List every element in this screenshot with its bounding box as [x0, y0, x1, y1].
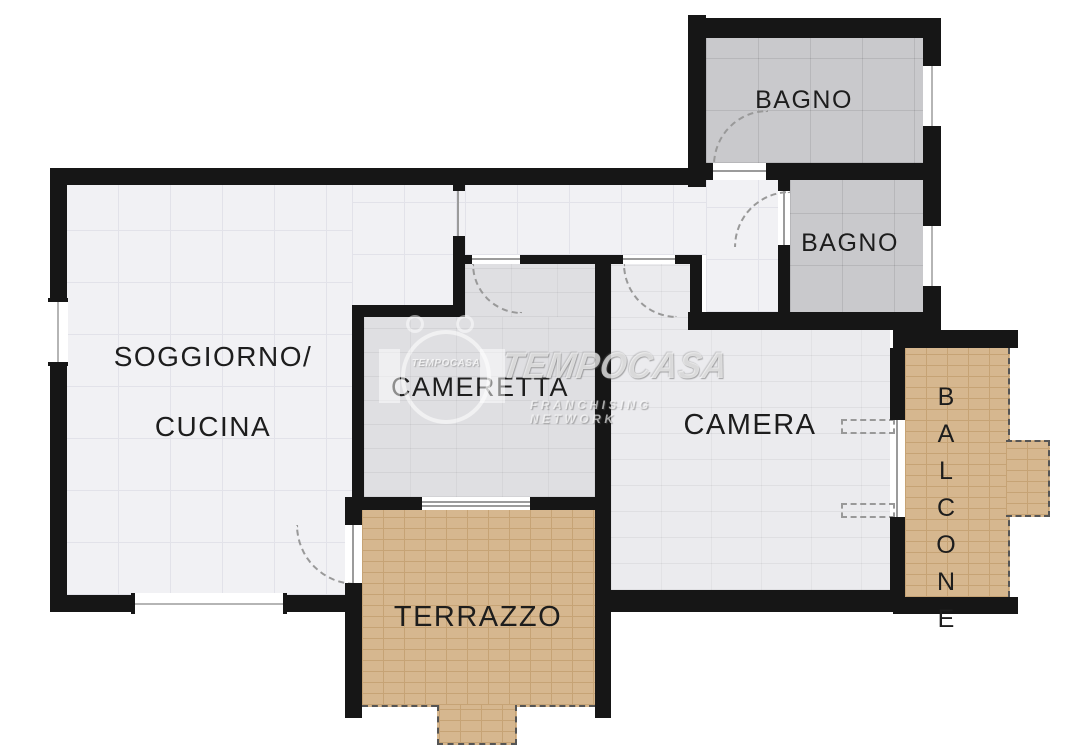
- window-soggiorno-bottom: [131, 593, 287, 614]
- cameretta-label: CAMERETTA: [390, 372, 570, 403]
- wall-bagno-divider-left: [706, 163, 713, 180]
- wall-cameretta-top-stub: [453, 255, 472, 264]
- window-bagno-mid: [923, 222, 941, 290]
- wall-outer-left: [50, 168, 67, 612]
- terrazzo-slider-line1: [422, 501, 530, 503]
- cameretta-door-threshold: [472, 258, 520, 260]
- wall-terrazzo-left-upper: [345, 497, 362, 525]
- wall-divider-cameretta-camera: [595, 255, 611, 718]
- wall-soggiorno-east-lower: [352, 305, 364, 498]
- wall-camera-bottom: [595, 590, 905, 612]
- corridor-floor: [465, 185, 706, 255]
- wall-balcone-top: [893, 330, 1018, 348]
- camera-floor: [611, 318, 890, 590]
- terrazzo-door-threshold: [352, 525, 354, 583]
- balcone-slider-panel-bottom: [841, 503, 895, 518]
- wall-bagno-divider-right: [766, 163, 923, 180]
- wall-terrazzo-top-right: [530, 497, 608, 510]
- bagno-mid-label: BAGNO: [790, 229, 910, 258]
- wall-bagno-mid-left-upper: [778, 180, 790, 191]
- terrazzo-slider-gap: [422, 497, 530, 510]
- wall-hallway-bottom: [688, 312, 923, 330]
- wall-outer-top: [50, 168, 705, 185]
- balcone-label: BALCONE: [931, 383, 960, 583]
- wall-annex-left: [688, 15, 706, 187]
- wall-camera-east-lower: [890, 517, 905, 595]
- wall-soggiorno-step: [352, 305, 465, 317]
- cameretta-floor: [364, 317, 595, 497]
- wall-terrazzo-left-lower: [345, 583, 362, 718]
- balcone-bump: [1006, 440, 1050, 517]
- soggiorno-label-line1: SOGGIORNO/: [114, 341, 313, 372]
- bagno-top-door-threshold: [713, 170, 766, 172]
- camera-door-threshold: [623, 258, 675, 260]
- floor-plan: SOGGIORNO/ CUCINA CAMERETTA CAMERA BAGNO…: [0, 0, 1069, 755]
- camera-label: CAMERA: [660, 409, 840, 442]
- soggiorno-label: SOGGIORNO/ CUCINA: [88, 304, 338, 444]
- balcone-slider-panel-top: [841, 419, 895, 434]
- terrazzo-slider-line2: [422, 505, 530, 507]
- opening-soggiorno-corridor: [457, 191, 459, 236]
- bagno-top-label: BAGNO: [744, 86, 864, 115]
- soggiorno-label-line2: CUCINA: [155, 411, 271, 442]
- wall-camera-east-upper: [890, 348, 905, 420]
- wall-camera-west-upper: [690, 255, 702, 318]
- bagno-mid-door-threshold: [783, 191, 785, 245]
- window-bagno-top: [923, 62, 941, 130]
- window-soggiorno-left: [48, 298, 68, 366]
- balcone-slider-line: [896, 420, 898, 517]
- wall-annex-top: [688, 18, 941, 38]
- soggiorno-floor-upper: [352, 185, 465, 307]
- terrazzo-label: TERRAZZO: [388, 601, 568, 634]
- wall-bagno-mid-left-lower: [778, 245, 790, 312]
- terrazzo-bump: [437, 705, 517, 745]
- wall-corridor-stub: [453, 185, 465, 191]
